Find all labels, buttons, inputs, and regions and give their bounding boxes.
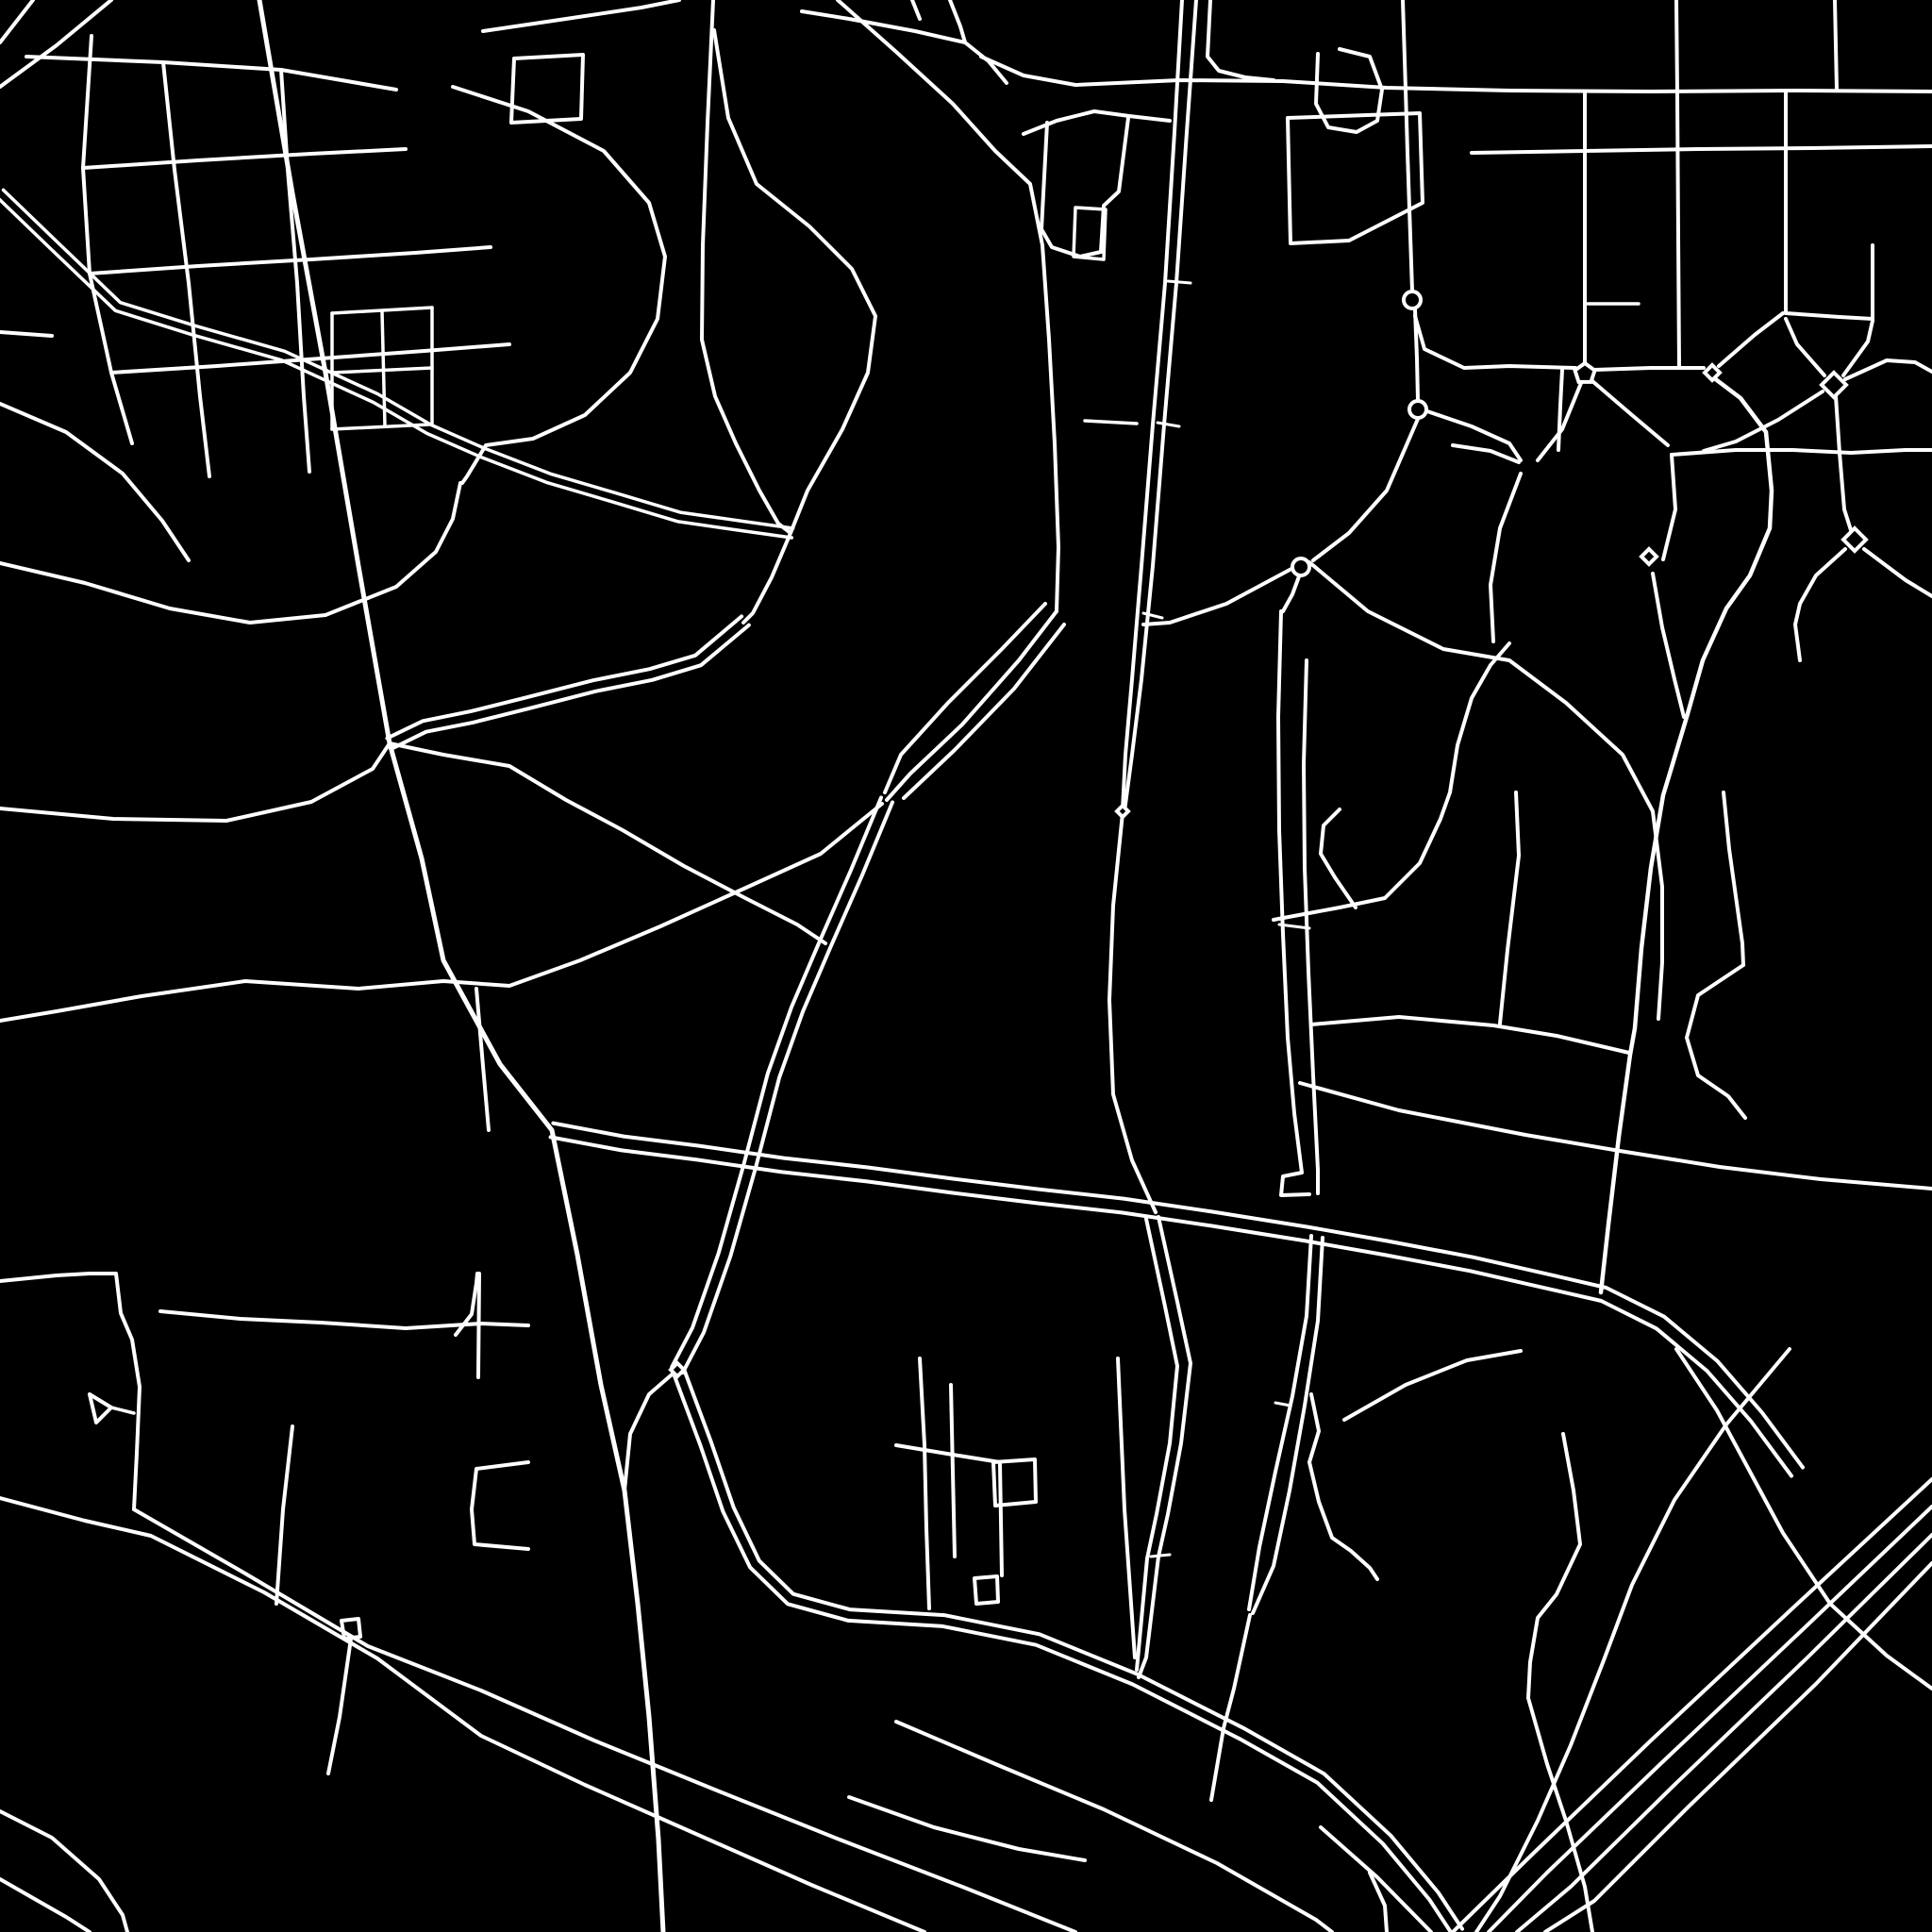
street-map xyxy=(0,0,1932,1932)
h388-east xyxy=(1594,368,1704,370)
roundabout-3-icon xyxy=(1292,558,1309,575)
rail-tick-1 xyxy=(1168,281,1191,283)
map-canvas xyxy=(0,0,1932,1932)
rail-terminus-icon xyxy=(1117,806,1128,817)
bc-v3 xyxy=(1000,1464,1002,1575)
map-background xyxy=(0,0,1932,1932)
junction-pentagon-icon xyxy=(1575,363,1595,382)
ne-corner-v xyxy=(1835,0,1837,90)
roundabout-2-icon xyxy=(1409,401,1426,418)
roundabout-1-icon xyxy=(1404,291,1421,308)
rail-south-tick xyxy=(1151,1555,1170,1557)
junction-k-icon xyxy=(671,1363,684,1376)
v-508-bl xyxy=(478,1274,479,1377)
